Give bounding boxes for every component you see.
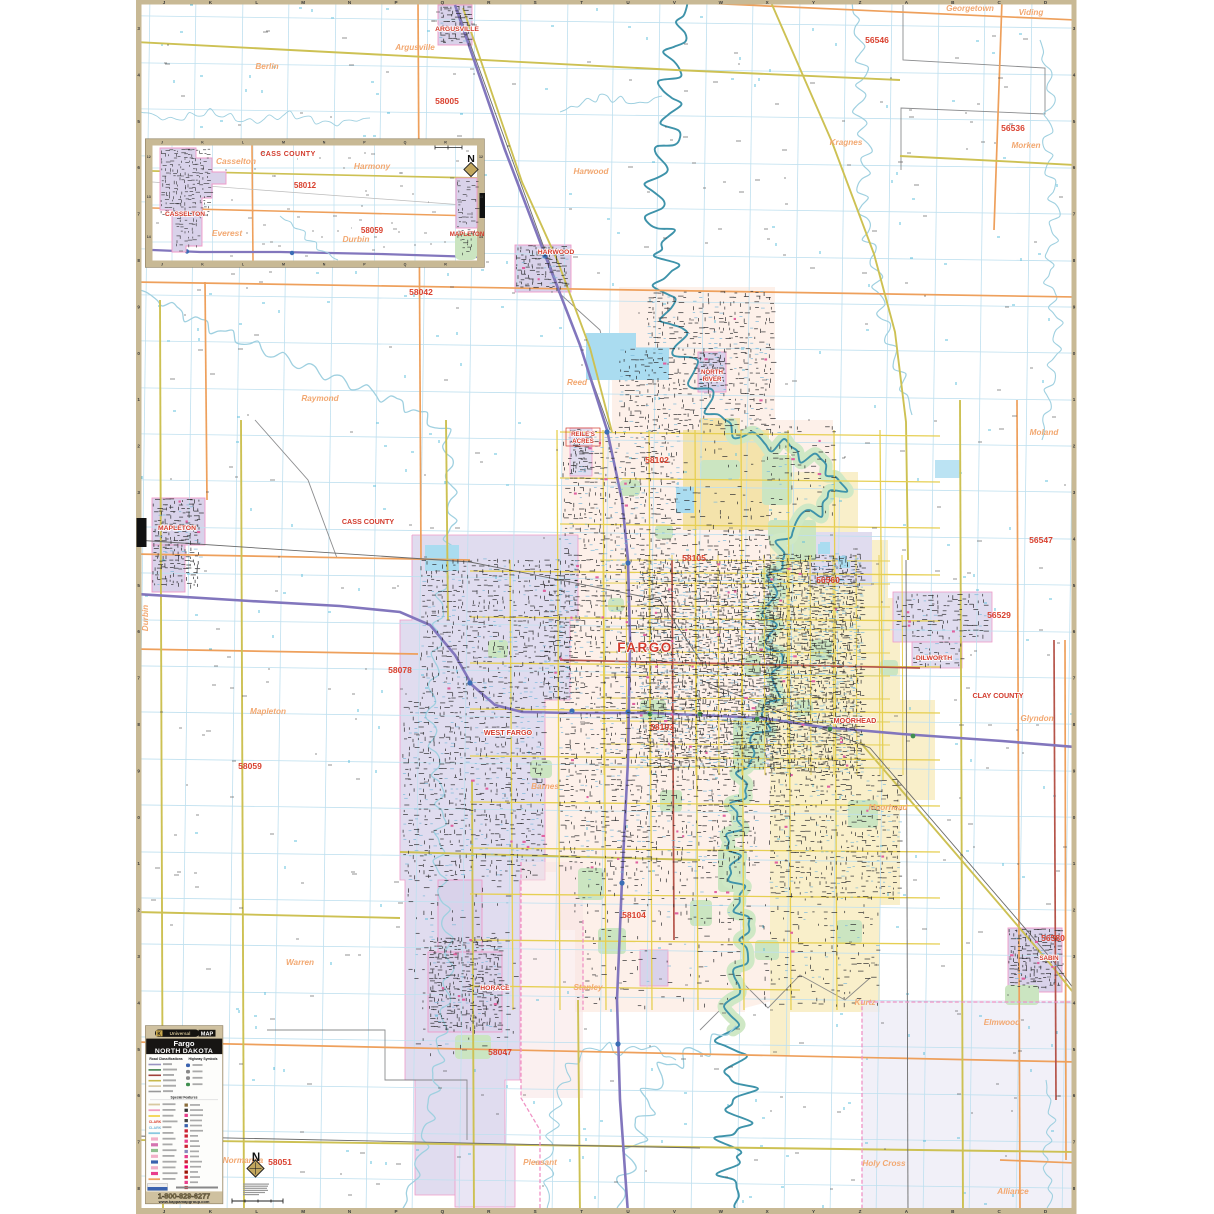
svg-text:Highway Symbols: Highway Symbols (188, 1057, 217, 1061)
svg-text:2: 2 (1073, 908, 1076, 913)
svg-text:Morken: Morken (1011, 141, 1040, 150)
svg-text:58051: 58051 (268, 1157, 292, 1167)
svg-text:Glyndon: Glyndon (1020, 714, 1053, 723)
svg-text:Stanley: Stanley (573, 983, 603, 992)
svg-text:FARGO: FARGO (617, 640, 673, 655)
svg-text:0: 0 (1073, 351, 1076, 356)
svg-text:MAPLETON: MAPLETON (158, 525, 196, 532)
svg-text:7: 7 (137, 212, 140, 217)
svg-text:5: 5 (1073, 1047, 1076, 1052)
svg-text:Georgetown: Georgetown (946, 4, 994, 13)
svg-text:Kurtz: Kurtz (855, 998, 877, 1007)
svg-text:Durbin: Durbin (343, 234, 370, 244)
svg-text:R: R (444, 141, 447, 145)
svg-text:3: 3 (1073, 490, 1076, 495)
svg-text:ARGUSVILLE: ARGUSVILLE (435, 26, 479, 33)
svg-text:58005: 58005 (435, 96, 459, 106)
svg-text:1: 1 (137, 861, 140, 866)
svg-text:Raymond: Raymond (301, 394, 339, 403)
svg-text:4: 4 (1073, 1000, 1076, 1005)
svg-text:T: T (580, 1209, 583, 1214)
svg-text:58103: 58103 (650, 722, 674, 732)
svg-text:Harwood: Harwood (573, 167, 609, 176)
svg-text:CLAY COUNTY: CLAY COUNTY (972, 691, 1023, 700)
svg-text:Berlin: Berlin (255, 62, 278, 71)
svg-text:L: L (255, 0, 258, 5)
svg-text:12: 12 (479, 155, 483, 159)
svg-text:Casselton: Casselton (216, 156, 256, 166)
svg-text:R: R (444, 263, 447, 267)
svg-text:Moorhead: Moorhead (868, 803, 908, 812)
svg-text:P: P (394, 1209, 397, 1214)
svg-text:5: 5 (137, 1047, 140, 1052)
svg-text:ACRES: ACRES (572, 438, 594, 445)
svg-text:9: 9 (1073, 304, 1076, 309)
svg-text:Y: Y (812, 1209, 815, 1214)
svg-text:58047: 58047 (488, 1047, 512, 1057)
svg-text:Q: Q (404, 141, 407, 145)
svg-text:58012: 58012 (294, 181, 317, 190)
svg-text:HARWOOD: HARWOOD (538, 249, 575, 256)
svg-text:56547: 56547 (1029, 535, 1053, 545)
svg-text:58059: 58059 (361, 226, 384, 235)
svg-text:W: W (719, 1209, 724, 1214)
svg-text:12: 12 (147, 155, 151, 159)
svg-text:7: 7 (1073, 212, 1076, 217)
svg-text:S: S (534, 1209, 537, 1214)
svg-text:CASSELTON: CASSELTON (165, 211, 205, 218)
svg-text:M: M (301, 0, 305, 5)
svg-text:J: J (163, 1209, 166, 1214)
svg-text:Argusville: Argusville (394, 43, 435, 52)
svg-text:Moland: Moland (1030, 428, 1060, 437)
svg-text:CLARK: CLARK (149, 1120, 162, 1124)
svg-text:www.kappamapgroup.com: www.kappamapgroup.com (158, 1199, 210, 1204)
svg-text:8: 8 (1073, 722, 1076, 727)
svg-text:8: 8 (137, 1186, 140, 1191)
svg-text:NORTH: NORTH (701, 369, 724, 376)
svg-text:56560: 56560 (816, 575, 840, 585)
svg-text:Z: Z (859, 1209, 862, 1214)
svg-text:Q: Q (441, 1209, 445, 1214)
svg-text:8: 8 (1073, 1186, 1076, 1191)
svg-text:58104: 58104 (622, 910, 646, 920)
svg-text:58105: 58105 (682, 553, 706, 563)
svg-text:7: 7 (1073, 1140, 1076, 1145)
svg-text:T: T (580, 0, 583, 5)
svg-text:4: 4 (1073, 536, 1076, 541)
svg-text:Warren: Warren (286, 958, 314, 967)
svg-text:5: 5 (1073, 119, 1076, 124)
svg-text:M: M (282, 141, 285, 145)
svg-text:SABIN: SABIN (1039, 955, 1059, 962)
svg-text:0: 0 (1073, 815, 1076, 820)
svg-text:6: 6 (1073, 1093, 1076, 1098)
svg-text:6: 6 (137, 1093, 140, 1098)
svg-text:Y: Y (812, 0, 815, 5)
svg-text:L: L (255, 1209, 258, 1214)
svg-text:Durbin: Durbin (141, 605, 150, 631)
svg-text:S: S (534, 0, 537, 5)
svg-text:Viding: Viding (1019, 8, 1044, 17)
svg-text:58102: 58102 (645, 455, 669, 465)
svg-text:CASS COUNTY: CASS COUNTY (342, 517, 395, 526)
svg-text:Mapleton: Mapleton (250, 707, 286, 716)
svg-text:13: 13 (147, 195, 151, 199)
svg-text:Everest: Everest (212, 228, 243, 238)
svg-text:2: 2 (1073, 444, 1076, 449)
svg-text:1: 1 (1073, 397, 1076, 402)
svg-text:7: 7 (1073, 676, 1076, 681)
svg-text:5: 5 (137, 119, 140, 124)
svg-text:Road Classifications: Road Classifications (149, 1057, 182, 1061)
svg-text:MOORHEAD: MOORHEAD (834, 716, 877, 725)
svg-text:J: J (161, 141, 163, 145)
svg-text:7: 7 (137, 676, 140, 681)
svg-text:Holy Cross: Holy Cross (862, 1159, 906, 1168)
svg-text:HORACE: HORACE (480, 985, 510, 992)
svg-text:4: 4 (137, 1000, 140, 1005)
svg-text:Alliance: Alliance (996, 1187, 1029, 1196)
svg-text:M: M (301, 1209, 305, 1214)
svg-text:3: 3 (137, 954, 140, 959)
svg-text:3: 3 (1073, 954, 1076, 959)
svg-text:K: K (157, 1031, 161, 1037)
svg-text:DILWORTH: DILWORTH (916, 655, 952, 662)
svg-text:9: 9 (1073, 768, 1076, 773)
svg-text:REILE'S: REILE'S (571, 431, 595, 438)
svg-text:Kragnes: Kragnes (830, 138, 863, 147)
svg-text:Elmwood: Elmwood (984, 1018, 1021, 1027)
svg-text:N: N (323, 263, 326, 267)
svg-text:NORTH DAKOTA: NORTH DAKOTA (155, 1048, 213, 1055)
svg-text:8: 8 (1073, 258, 1076, 263)
svg-text:WEST FARGO: WEST FARGO (484, 728, 533, 737)
svg-text:Barnes: Barnes (531, 782, 559, 791)
svg-text:Special Features: Special Features (171, 1096, 198, 1100)
svg-text:4: 4 (137, 72, 140, 77)
svg-text:5: 5 (1073, 583, 1076, 588)
svg-text:6: 6 (137, 165, 140, 170)
svg-text:3: 3 (137, 490, 140, 495)
svg-text:3: 3 (1073, 26, 1076, 31)
svg-text:Fargo: Fargo (173, 1039, 194, 1048)
svg-text:6: 6 (137, 629, 140, 634)
svg-text:M: M (282, 263, 285, 267)
svg-text:9: 9 (137, 304, 140, 309)
svg-text:8: 8 (137, 258, 140, 263)
svg-text:56546: 56546 (865, 35, 889, 45)
svg-text:Q: Q (441, 0, 445, 5)
svg-text:58059: 58059 (238, 761, 262, 771)
svg-text:58042: 58042 (409, 287, 433, 297)
svg-text:2: 2 (137, 444, 140, 449)
svg-text:CASS COUNTY: CASS COUNTY (260, 151, 315, 158)
svg-text:MAP: MAP (201, 1031, 214, 1037)
svg-text:58078: 58078 (388, 665, 412, 675)
svg-text:3: 3 (137, 26, 140, 31)
svg-text:56580: 56580 (1041, 933, 1065, 943)
svg-text:K: K (201, 263, 204, 267)
svg-text:CLARK: CLARK (149, 1126, 162, 1130)
svg-text:K: K (201, 141, 204, 145)
svg-text:7: 7 (137, 1140, 140, 1145)
svg-text:1: 1 (1073, 861, 1076, 866)
svg-text:2: 2 (137, 908, 140, 913)
svg-text:Q: Q (404, 263, 407, 267)
svg-text:J: J (163, 0, 166, 5)
svg-text:14: 14 (479, 235, 483, 239)
svg-text:Z: Z (859, 0, 862, 5)
svg-text:RIVER: RIVER (703, 376, 722, 383)
svg-text:W: W (719, 0, 724, 5)
svg-text:Harmony: Harmony (354, 161, 391, 171)
svg-text:J: J (161, 263, 163, 267)
svg-text:5: 5 (137, 583, 140, 588)
svg-text:Reed: Reed (567, 378, 588, 387)
svg-text:13: 13 (479, 195, 483, 199)
svg-text:56529: 56529 (987, 610, 1011, 620)
svg-text:14: 14 (147, 235, 151, 239)
svg-text:0: 0 (137, 815, 140, 820)
svg-text:56536: 56536 (1001, 123, 1025, 133)
svg-text:0: 0 (137, 351, 140, 356)
svg-text:6: 6 (1073, 629, 1076, 634)
svg-text:8: 8 (137, 722, 140, 727)
svg-text:N: N (323, 141, 326, 145)
svg-text:P: P (394, 0, 397, 5)
svg-text:9: 9 (137, 768, 140, 773)
svg-text:6: 6 (1073, 165, 1076, 170)
svg-text:Universal: Universal (170, 1031, 191, 1036)
svg-text:4: 4 (1073, 72, 1076, 77)
svg-text:1: 1 (137, 397, 140, 402)
